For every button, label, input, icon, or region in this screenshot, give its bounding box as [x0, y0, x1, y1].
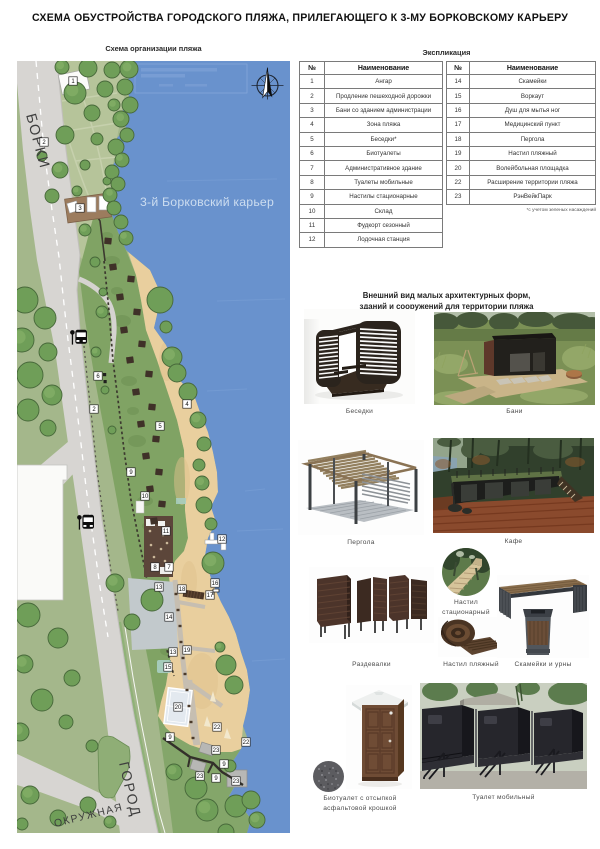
svg-text:3-й Борковский карьер: 3-й Борковский карьер — [140, 195, 274, 209]
svg-text:22: 22 — [243, 740, 250, 746]
svg-text:18: 18 — [179, 587, 186, 593]
svg-text:22: 22 — [214, 725, 221, 731]
svg-text:12: 12 — [219, 537, 226, 543]
svg-text:23: 23 — [197, 774, 204, 780]
svg-text:13: 13 — [156, 585, 163, 591]
svg-text:15: 15 — [165, 665, 172, 671]
svg-text:23: 23 — [213, 748, 220, 754]
svg-text:11: 11 — [163, 529, 170, 535]
svg-text:19: 19 — [184, 648, 191, 654]
svg-text:23: 23 — [233, 779, 240, 785]
svg-text:20: 20 — [175, 705, 182, 711]
svg-text:13: 13 — [170, 650, 177, 656]
svg-text:10: 10 — [142, 494, 149, 500]
svg-text:16: 16 — [212, 581, 219, 587]
svg-text:14: 14 — [166, 615, 173, 621]
